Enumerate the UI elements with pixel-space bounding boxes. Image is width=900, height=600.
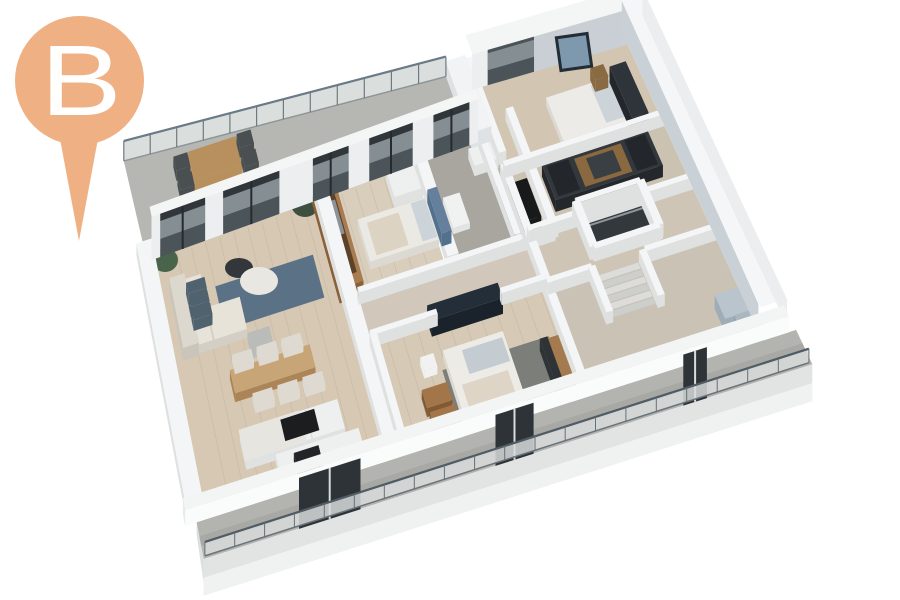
svg-text:B: B	[40, 24, 121, 136]
